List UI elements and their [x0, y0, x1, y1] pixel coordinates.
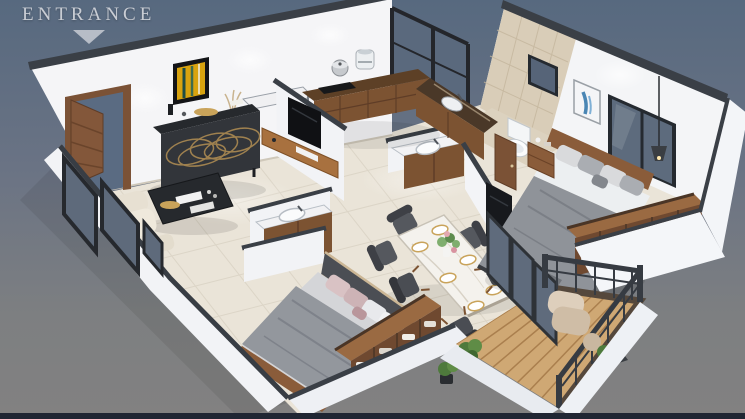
floorplan-render: ENTRANCE [0, 0, 745, 419]
footer-bar [0, 413, 745, 419]
entrance-label-group: ENTRANCE [22, 4, 155, 44]
vase [168, 104, 173, 115]
floorplan-scene [0, 0, 745, 419]
cooking-pot [332, 60, 348, 76]
air-fryer [356, 50, 374, 70]
entrance-arrow-down-icon [73, 30, 105, 44]
bath-door [495, 134, 516, 190]
entrance-label: ENTRANCE [22, 4, 155, 26]
yellow-wall-art [173, 57, 209, 105]
gold-platter [194, 108, 218, 116]
